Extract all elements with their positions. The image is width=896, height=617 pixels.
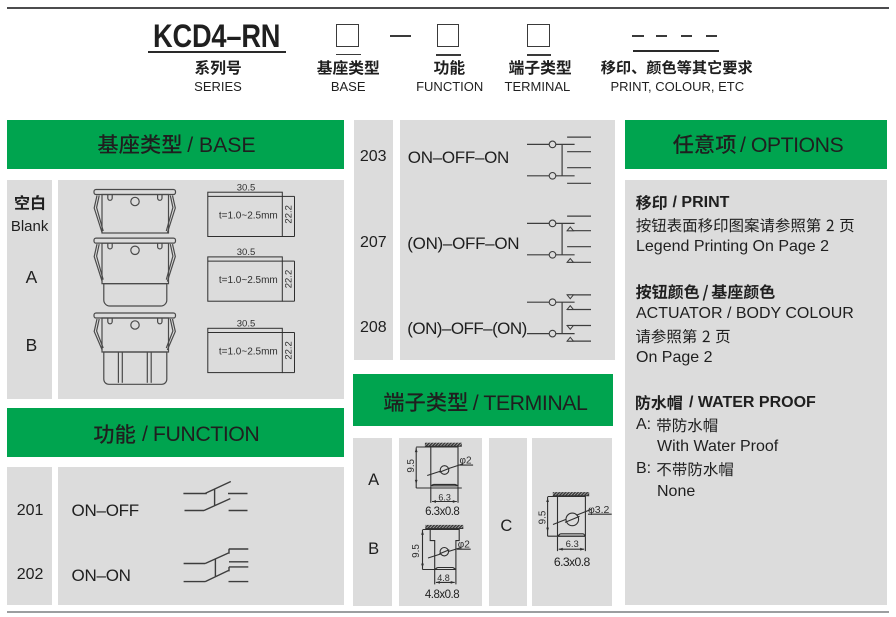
- svg-text:φ2: φ2: [458, 539, 470, 550]
- svg-text:φ2: φ2: [459, 455, 471, 466]
- svg-text:6.3: 6.3: [438, 492, 451, 502]
- svg-text:4.8x0.8: 4.8x0.8: [425, 589, 459, 601]
- svg-text:9.5: 9.5: [406, 458, 417, 472]
- svg-text:9.5: 9.5: [538, 510, 549, 524]
- svg-text:t=1.0~2.5mm: t=1.0~2.5mm: [219, 211, 278, 222]
- svg-text:t=1.0~2.5mm: t=1.0~2.5mm: [219, 347, 278, 358]
- svg-text:6.3x0.8: 6.3x0.8: [554, 555, 591, 569]
- svg-text:6.3: 6.3: [566, 539, 579, 550]
- svg-text:t=1.0~2.5mm: t=1.0~2.5mm: [219, 275, 278, 286]
- svg-text:6.3x0.8: 6.3x0.8: [425, 506, 459, 518]
- svg-text:30.5: 30.5: [237, 247, 256, 258]
- svg-text:22.2: 22.2: [283, 341, 294, 360]
- svg-text:9.5: 9.5: [411, 544, 422, 558]
- svg-text:φ3.2: φ3.2: [588, 504, 610, 516]
- svg-text:22.2: 22.2: [283, 205, 294, 224]
- svg-text:30.5: 30.5: [237, 182, 256, 193]
- svg-text:30.5: 30.5: [237, 319, 256, 330]
- svg-text:4.8: 4.8: [437, 573, 450, 583]
- svg-text:22.2: 22.2: [283, 270, 294, 289]
